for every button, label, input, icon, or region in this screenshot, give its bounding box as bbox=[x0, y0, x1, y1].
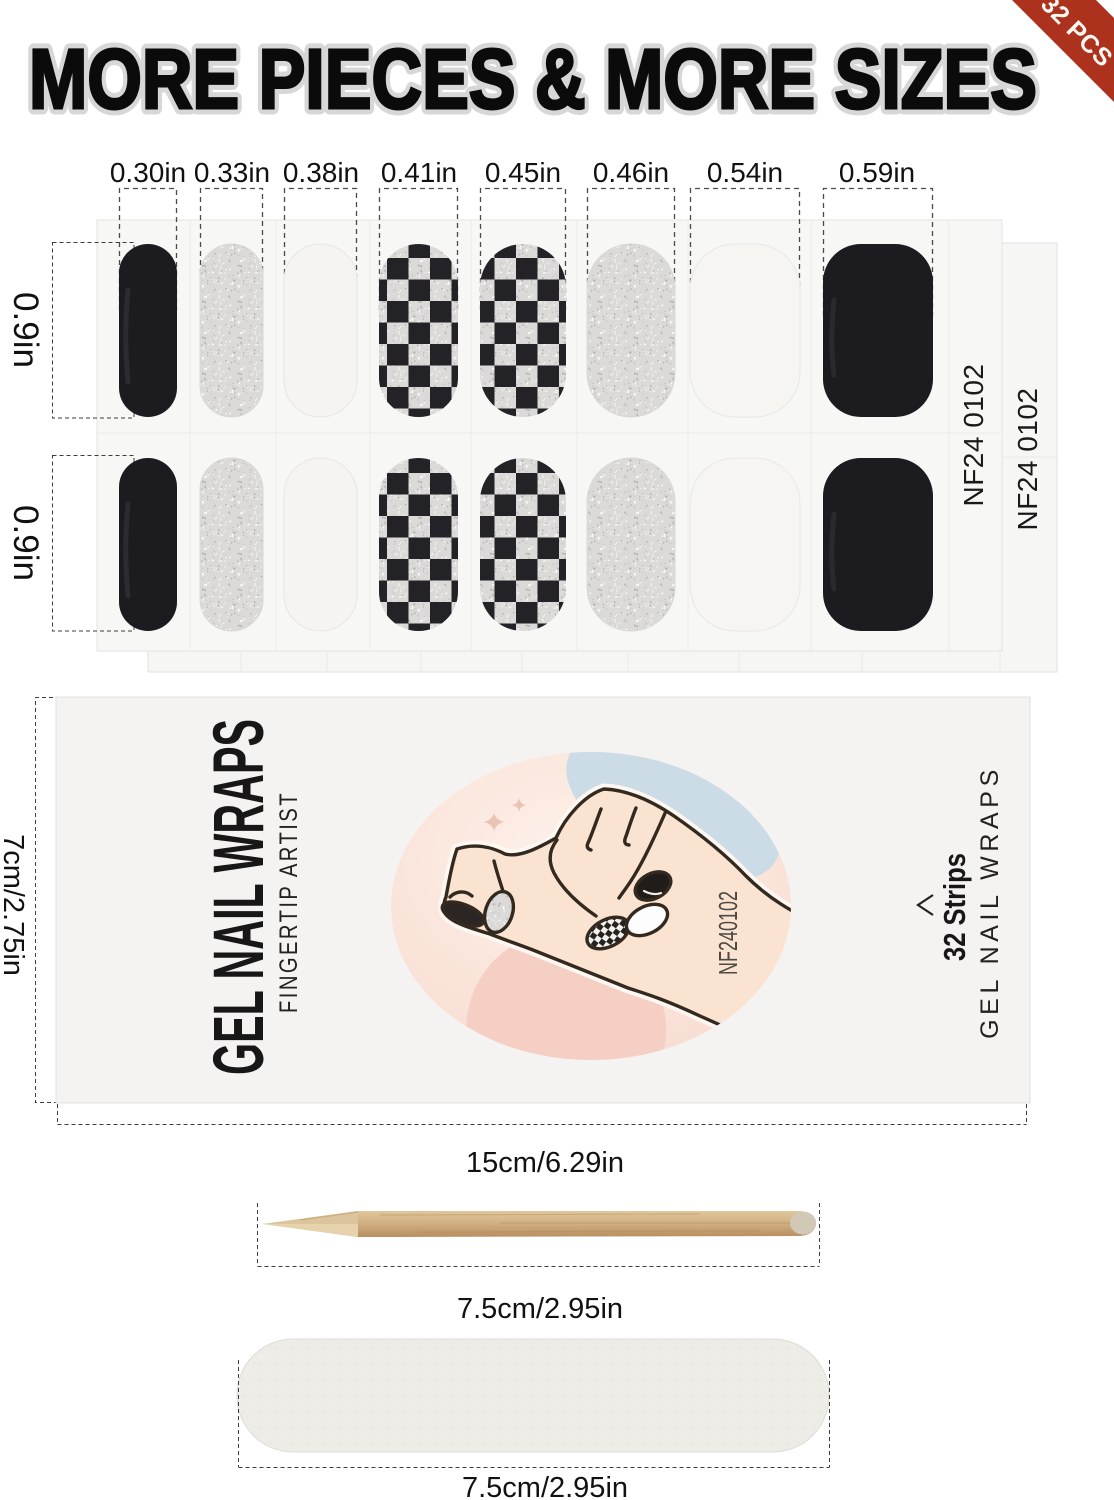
svg-text:NF240102: NF240102 bbox=[713, 891, 743, 975]
svg-text:0.41in: 0.41in bbox=[381, 157, 457, 188]
svg-text:MORE PIECES & MORE SIZES: MORE PIECES & MORE SIZES bbox=[29, 32, 1037, 126]
svg-text:0.45in: 0.45in bbox=[485, 157, 561, 188]
svg-text:7.5cm/2.95in: 7.5cm/2.95in bbox=[457, 1293, 623, 1325]
svg-text:0.38in: 0.38in bbox=[283, 157, 359, 188]
svg-text:FINGERTIP ARTIST: FINGERTIP ARTIST bbox=[275, 791, 303, 1013]
svg-text:GEL NAIL WRAPS: GEL NAIL WRAPS bbox=[976, 765, 1004, 1039]
svg-text:0.30in: 0.30in bbox=[110, 157, 186, 188]
svg-text:0.33in: 0.33in bbox=[194, 157, 270, 188]
svg-text:7cm/2.75in: 7cm/2.75in bbox=[0, 834, 29, 976]
svg-text:0.9in: 0.9in bbox=[6, 505, 45, 581]
svg-text:0.9in: 0.9in bbox=[6, 292, 45, 368]
svg-text:15cm/6.29in: 15cm/6.29in bbox=[466, 1147, 624, 1179]
svg-text:0.59in: 0.59in bbox=[839, 157, 915, 188]
svg-text:0.46in: 0.46in bbox=[593, 157, 669, 188]
svg-text:32 Strips: 32 Strips bbox=[937, 853, 972, 961]
svg-text:NF24 0102: NF24 0102 bbox=[958, 363, 989, 506]
svg-text:GEL NAIL WRAPS: GEL NAIL WRAPS bbox=[200, 719, 279, 1075]
svg-text:NF24 0102: NF24 0102 bbox=[1012, 387, 1043, 530]
svg-text:0.54in: 0.54in bbox=[707, 157, 783, 188]
svg-text:7.5cm/2.95in: 7.5cm/2.95in bbox=[462, 1472, 628, 1500]
